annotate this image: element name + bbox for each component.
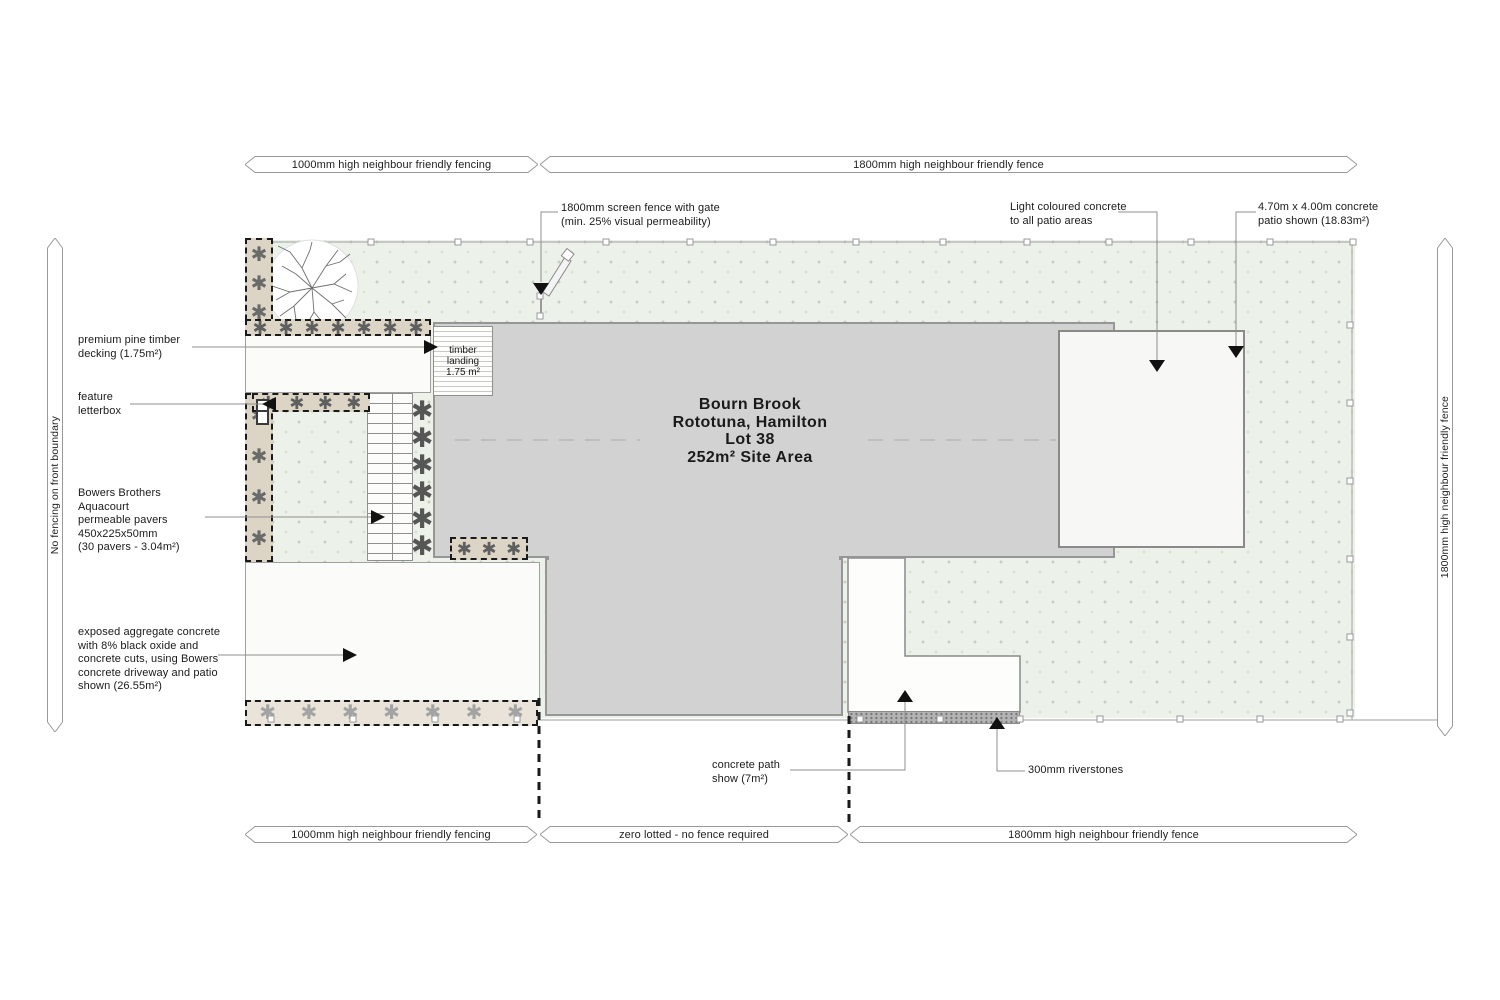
annotation-aggregate: exposed aggregate concrete with 8% black… [78,626,220,694]
fence-label-bottom-left: 1000mm high neighbour friendly fencing [245,826,537,843]
annotation-pavers: Bowers Brothers Aquacourt permeable pave… [78,487,180,555]
shrub-icon: ✱ [251,274,268,294]
driveway [245,562,540,701]
shrub-icon: ✱ [278,319,293,337]
shrub-icon: ✱ [466,703,483,723]
site-title: Bourn Brook Rototuna, Hamilton Lot 38 25… [590,396,910,466]
fence-label-bottom-left-text: 1000mm high neighbour friendly fencing [291,829,490,841]
shrub-icon: ✱ [289,394,304,412]
shrub-icon: ✱ [259,703,276,723]
shrub-icon: ✱ [411,452,434,479]
shrub-icon: ✱ [481,540,496,558]
site-title-line3: Lot 38 [590,431,910,449]
shrub-icon: ✱ [318,394,333,412]
fence-label-bottom-mid-text: zero lotted - no fence required [619,829,769,841]
paver-steps-divider [392,394,393,560]
site-title-line2: Rototuna, Hamilton [590,414,910,432]
annotation-riverstones: 300mm riverstones [1028,764,1123,778]
shrub-icon: ✱ [251,447,268,467]
shrub-icon: ✱ [304,319,319,337]
annotation-light-concrete: Light coloured concrete to all patio are… [1010,201,1127,228]
shrub-icon: ✱ [411,479,434,506]
concrete-patio [1058,330,1245,548]
annotation-concrete-path: concrete path show (7m²) [712,759,780,786]
garden-bed-left-top: ✱✱✱ [245,238,273,330]
annotation-decking: premium pine timber decking (1.75m²) [78,334,180,361]
shrub-icon: ✱ [251,245,268,265]
shrub-icon: ✱ [342,703,359,723]
fence-label-top-left: 1000mm high neighbour friendly fencing [245,156,538,173]
shrub-icon: ✱ [251,488,268,508]
hedge-row: ✱✱✱✱✱✱ [407,398,437,560]
fence-label-top-right: 1800mm high neighbour friendly fence [540,156,1357,173]
shrub-icon: ✱ [330,319,345,337]
garden-bed-letterbox: ✱✱✱✱ [252,393,370,412]
fence-label-left: No fencing on front boundary [47,238,63,732]
shrub-icon: ✱ [408,319,423,337]
shrub-icon: ✱ [251,529,268,549]
shrub-icon: ✱ [507,703,524,723]
house-footprint-rear [545,558,843,716]
site-title-line4: 252m² Site Area [590,449,910,467]
timber-landing: timber landing 1.75 m² [433,326,493,396]
fence-label-left-text: No fencing on front boundary [49,416,61,554]
annotation-screen-fence: 1800mm screen fence with gate (min. 25% … [561,202,720,229]
letterbox-slot [258,410,267,412]
annotation-letterbox: feature letterbox [78,391,121,418]
shrub-icon: ✱ [506,540,521,558]
house-seam [549,554,839,562]
fence-label-top-right-text: 1800mm high neighbour friendly fence [853,159,1044,171]
fence-label-right: 1800mm high neighbour friendly fence [1437,238,1453,736]
timber-landing-label: timber landing 1.75 m² [446,345,480,378]
annotation-patio-size: 4.70m x 4.00m concrete patio shown (18.8… [1258,201,1378,228]
fence-label-bottom-right: 1800mm high neighbour friendly fence [850,826,1357,843]
garden-bed-bottom: ✱✱✱✱✱✱✱ [245,700,538,726]
shrub-icon: ✱ [356,319,371,337]
fence-label-top-left-text: 1000mm high neighbour friendly fencing [292,159,491,171]
shrub-icon: ✱ [411,506,434,533]
riverstones-strip [848,711,1020,724]
shrub-icon: ✱ [411,533,434,560]
garden-bed-house-corner: ✱✱✱ [450,537,528,560]
fence-label-bottom-mid: zero lotted - no fence required [540,826,848,843]
front-walkway [245,335,431,393]
shrub-icon: ✱ [424,703,441,723]
letterbox-icon [256,399,269,425]
garden-bed-top: ✱✱✱✱✱✱✱ [245,319,431,336]
shrub-icon: ✱ [301,703,318,723]
shrub-icon: ✱ [457,540,472,558]
fence-label-right-text: 1800mm high neighbour friendly fence [1439,396,1451,578]
site-plan-canvas: timber landing 1.75 m² ✱✱✱ ✱✱✱✱ ✱✱✱✱✱✱✱ … [0,0,1500,1000]
shrub-icon: ✱ [411,398,434,425]
shrub-icon: ✱ [252,319,267,337]
shrub-icon: ✱ [411,425,434,452]
fence-label-bottom-right-text: 1800mm high neighbour friendly fence [1008,829,1199,841]
site-title-line1: Bourn Brook [590,396,910,414]
shrub-icon: ✱ [383,703,400,723]
shrub-icon: ✱ [346,394,361,412]
shrub-icon: ✱ [382,319,397,337]
